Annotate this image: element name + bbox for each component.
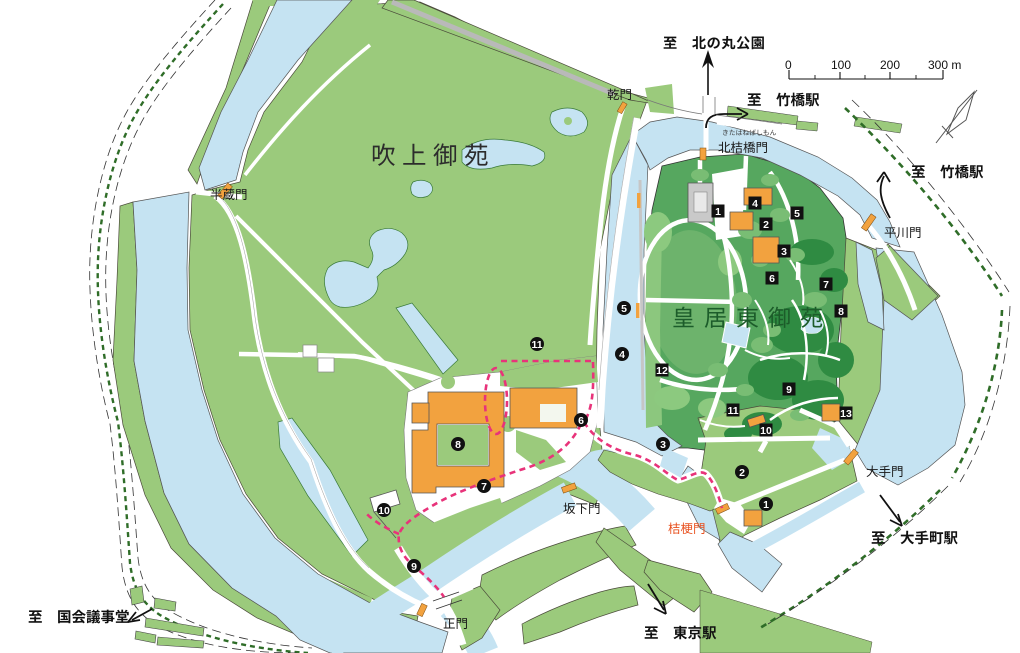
svg-text:2: 2 bbox=[739, 467, 745, 479]
svg-text:7: 7 bbox=[823, 279, 829, 291]
svg-text:200: 200 bbox=[880, 58, 900, 72]
svg-text:300 m: 300 m bbox=[928, 58, 961, 72]
svg-text:10: 10 bbox=[378, 505, 390, 517]
svg-text:3: 3 bbox=[781, 246, 787, 258]
svg-text:1: 1 bbox=[763, 499, 769, 511]
svg-text:7: 7 bbox=[481, 481, 487, 493]
svg-text:8: 8 bbox=[838, 306, 844, 318]
svg-text:1: 1 bbox=[715, 206, 721, 218]
svg-text:2: 2 bbox=[763, 219, 769, 231]
svg-text:11: 11 bbox=[727, 405, 738, 417]
svg-text:6: 6 bbox=[578, 415, 584, 427]
svg-text:6: 6 bbox=[769, 273, 775, 285]
svg-text:12: 12 bbox=[656, 365, 668, 377]
svg-text:5: 5 bbox=[621, 303, 627, 315]
svg-text:4: 4 bbox=[619, 349, 625, 361]
svg-text:10: 10 bbox=[760, 425, 772, 437]
svg-text:9: 9 bbox=[411, 561, 417, 573]
svg-text:4: 4 bbox=[752, 198, 758, 210]
svg-text:9: 9 bbox=[786, 384, 792, 396]
svg-text:13: 13 bbox=[840, 408, 852, 420]
svg-text:0: 0 bbox=[785, 58, 792, 72]
svg-text:5: 5 bbox=[794, 208, 800, 220]
svg-text:100: 100 bbox=[831, 58, 851, 72]
svg-text:11: 11 bbox=[531, 339, 542, 351]
svg-text:3: 3 bbox=[660, 439, 666, 451]
svg-text:8: 8 bbox=[455, 439, 461, 451]
